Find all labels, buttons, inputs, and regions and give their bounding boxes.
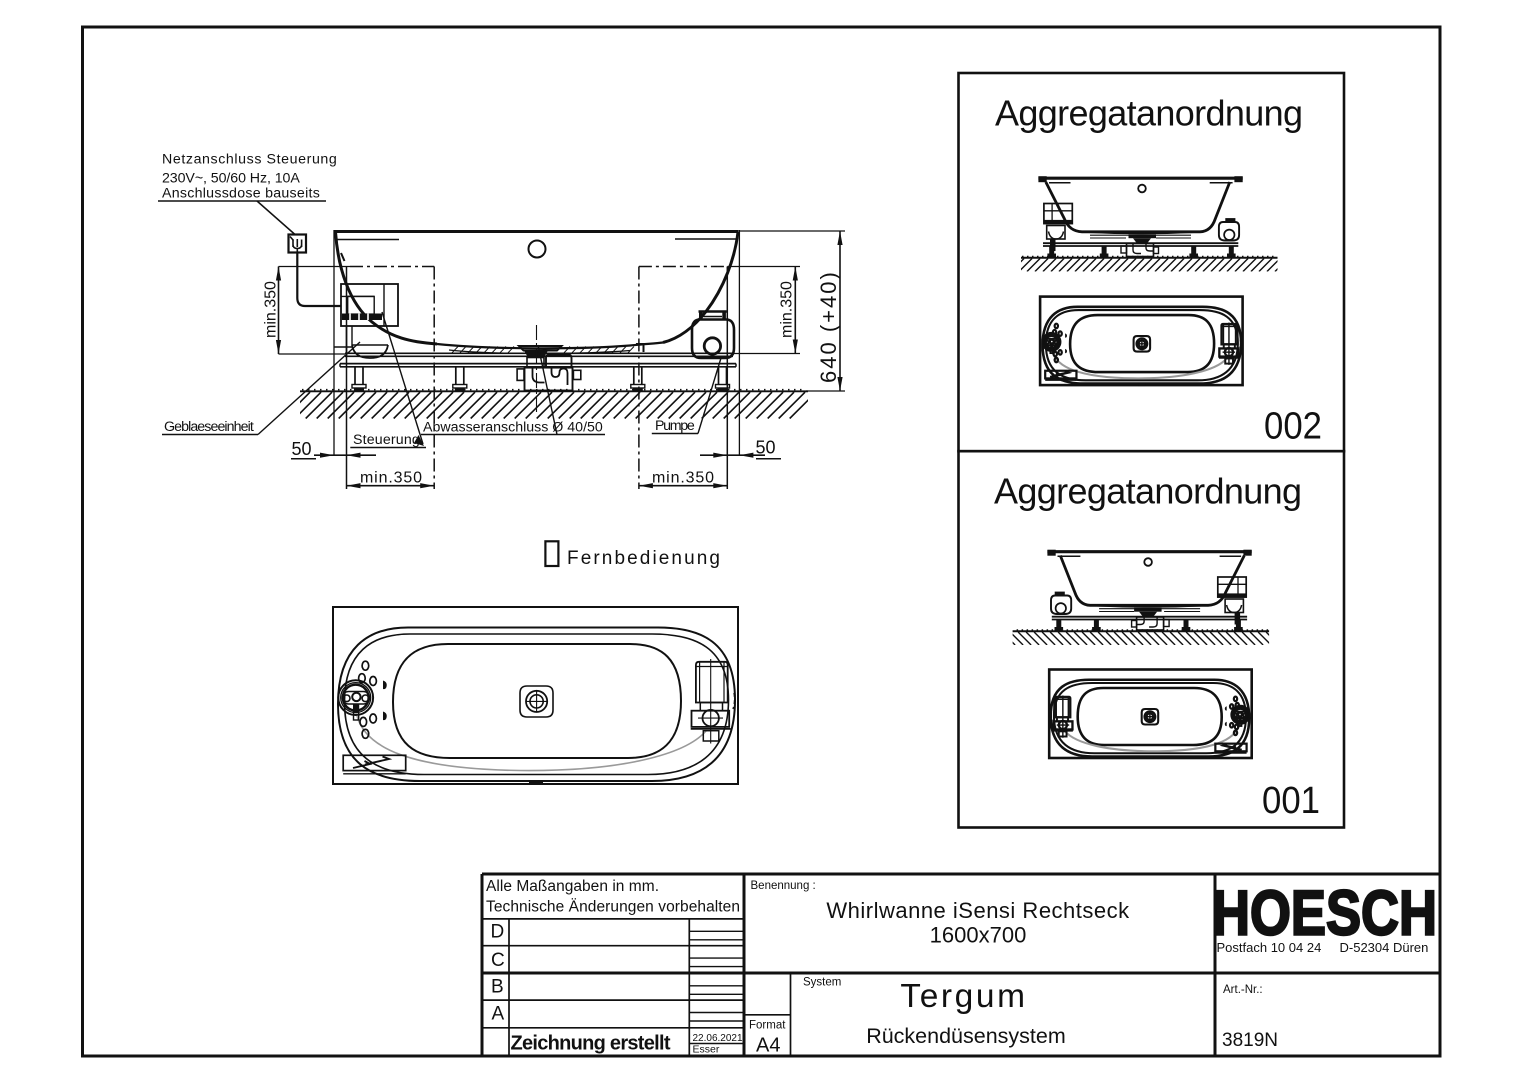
svg-text:min.350: min.350 [652, 470, 714, 487]
svg-text:Whirlwanne iSensi Rechtseck: Whirlwanne iSensi Rechtseck [826, 898, 1130, 923]
svg-text:640 (+40): 640 (+40) [816, 270, 841, 383]
svg-text:001: 001 [1262, 780, 1320, 822]
svg-text:Art.-Nr.:: Art.-Nr.: [1223, 984, 1263, 996]
svg-text:Fernbedienung: Fernbedienung [567, 548, 720, 569]
svg-text:Benennung :: Benennung : [751, 880, 816, 892]
svg-text:min.350: min.350 [360, 470, 422, 487]
svg-text:002: 002 [1264, 406, 1322, 448]
svg-text:Anschlussdose bauseits: Anschlussdose bauseits [162, 186, 320, 202]
svg-text:Steuerung: Steuerung [353, 432, 420, 448]
svg-text:min.350: min.350 [779, 281, 796, 338]
svg-text:Postfach 10 04 24: Postfach 10 04 24 [1217, 940, 1322, 955]
svg-text:D: D [491, 922, 505, 943]
svg-text:B: B [491, 977, 504, 998]
svg-text:Tergum: Tergum [900, 978, 1027, 1015]
svg-text:230V~, 50/60 Hz, 10A: 230V~, 50/60 Hz, 10A [162, 171, 300, 187]
svg-text:Netzanschluss Steuerung: Netzanschluss Steuerung [162, 152, 337, 168]
svg-text:Zeichnung erstellt: Zeichnung erstellt [511, 1033, 671, 1055]
svg-text:Abwasseranschluss Ø 40/50: Abwasseranschluss Ø 40/50 [423, 420, 603, 436]
svg-text:Esser: Esser [693, 1044, 720, 1056]
svg-text:Rückendüsensystem: Rückendüsensystem [866, 1024, 1066, 1048]
svg-text:Aggregatanordnung: Aggregatanordnung [995, 93, 1303, 134]
svg-text:Alle Maßangaben in mm.: Alle Maßangaben in mm. [486, 878, 659, 895]
svg-text:3819N: 3819N [1222, 1030, 1278, 1051]
svg-text:A4: A4 [756, 1035, 780, 1057]
svg-text:D-52304 Düren: D-52304 Düren [1340, 940, 1429, 955]
svg-text:C: C [491, 950, 505, 971]
svg-text:Pumpe: Pumpe [655, 418, 695, 434]
svg-text:1600x700: 1600x700 [930, 923, 1027, 948]
svg-text:50: 50 [292, 439, 312, 459]
svg-text:HOESCH: HOESCH [1212, 879, 1437, 949]
svg-text:Aggregatanordnung: Aggregatanordnung [994, 471, 1302, 512]
svg-text:50: 50 [756, 438, 776, 458]
svg-text:A: A [492, 1004, 505, 1025]
svg-text:22.06.2021: 22.06.2021 [693, 1033, 743, 1044]
svg-text:Geblaeseeinheit: Geblaeseeinheit [164, 419, 254, 435]
svg-text:Technische Änderungen vorbehal: Technische Änderungen vorbehalten [486, 899, 740, 916]
svg-text:Format: Format [749, 1020, 786, 1032]
svg-text:System: System [803, 977, 841, 989]
svg-text:min.350: min.350 [263, 281, 280, 338]
